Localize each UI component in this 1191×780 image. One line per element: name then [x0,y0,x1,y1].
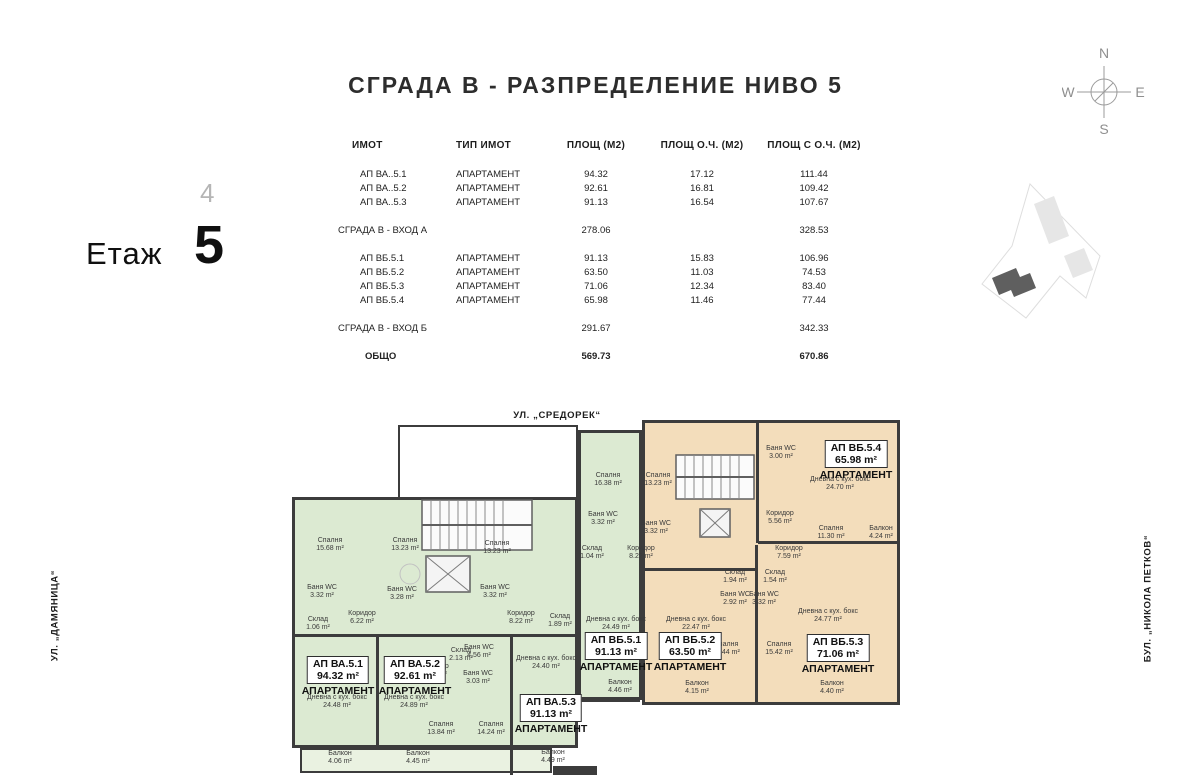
plan-wall [758,541,900,544]
plan-wall [642,568,756,571]
plan-block [398,425,578,499]
wc-fixture-icon [400,564,420,584]
staircase-core-b [656,425,772,545]
apartment-label-5.1[interactable]: АП ВБ.5.191.13 m²АПАРТАМЕНТ [580,632,653,673]
entrance-mark [553,766,597,775]
staircase-core-a [398,490,544,596]
plan-block [300,748,552,773]
floor-plan: Спалня15.68 m²Спалня13.23 m²Баня WC3.32 … [0,0,1191,780]
plan-wall [510,636,513,775]
apartment-label-5.4[interactable]: АП ВБ.5.465.98 m²АПАРТАМЕНТ [820,440,893,481]
plan-wall [292,634,578,637]
apartment-label-5.2[interactable]: АП ВБ.5.263.50 m²АПАРТАМЕНТ [654,632,727,673]
plan-wall [756,423,759,543]
apartment-label-5.3[interactable]: АП ВА.5.391.13 m²АПАРТАМЕНТ [515,694,588,735]
apartment-label-5.2[interactable]: АП ВА.5.292.61 m²АПАРТАМЕНТ [379,656,452,697]
apartment-label-5.1[interactable]: АП ВА.5.194.32 m²АПАРТАМЕНТ [302,656,375,697]
apartment-label-5.3[interactable]: АП ВБ.5.371.06 m²АПАРТАМЕНТ [802,634,875,675]
